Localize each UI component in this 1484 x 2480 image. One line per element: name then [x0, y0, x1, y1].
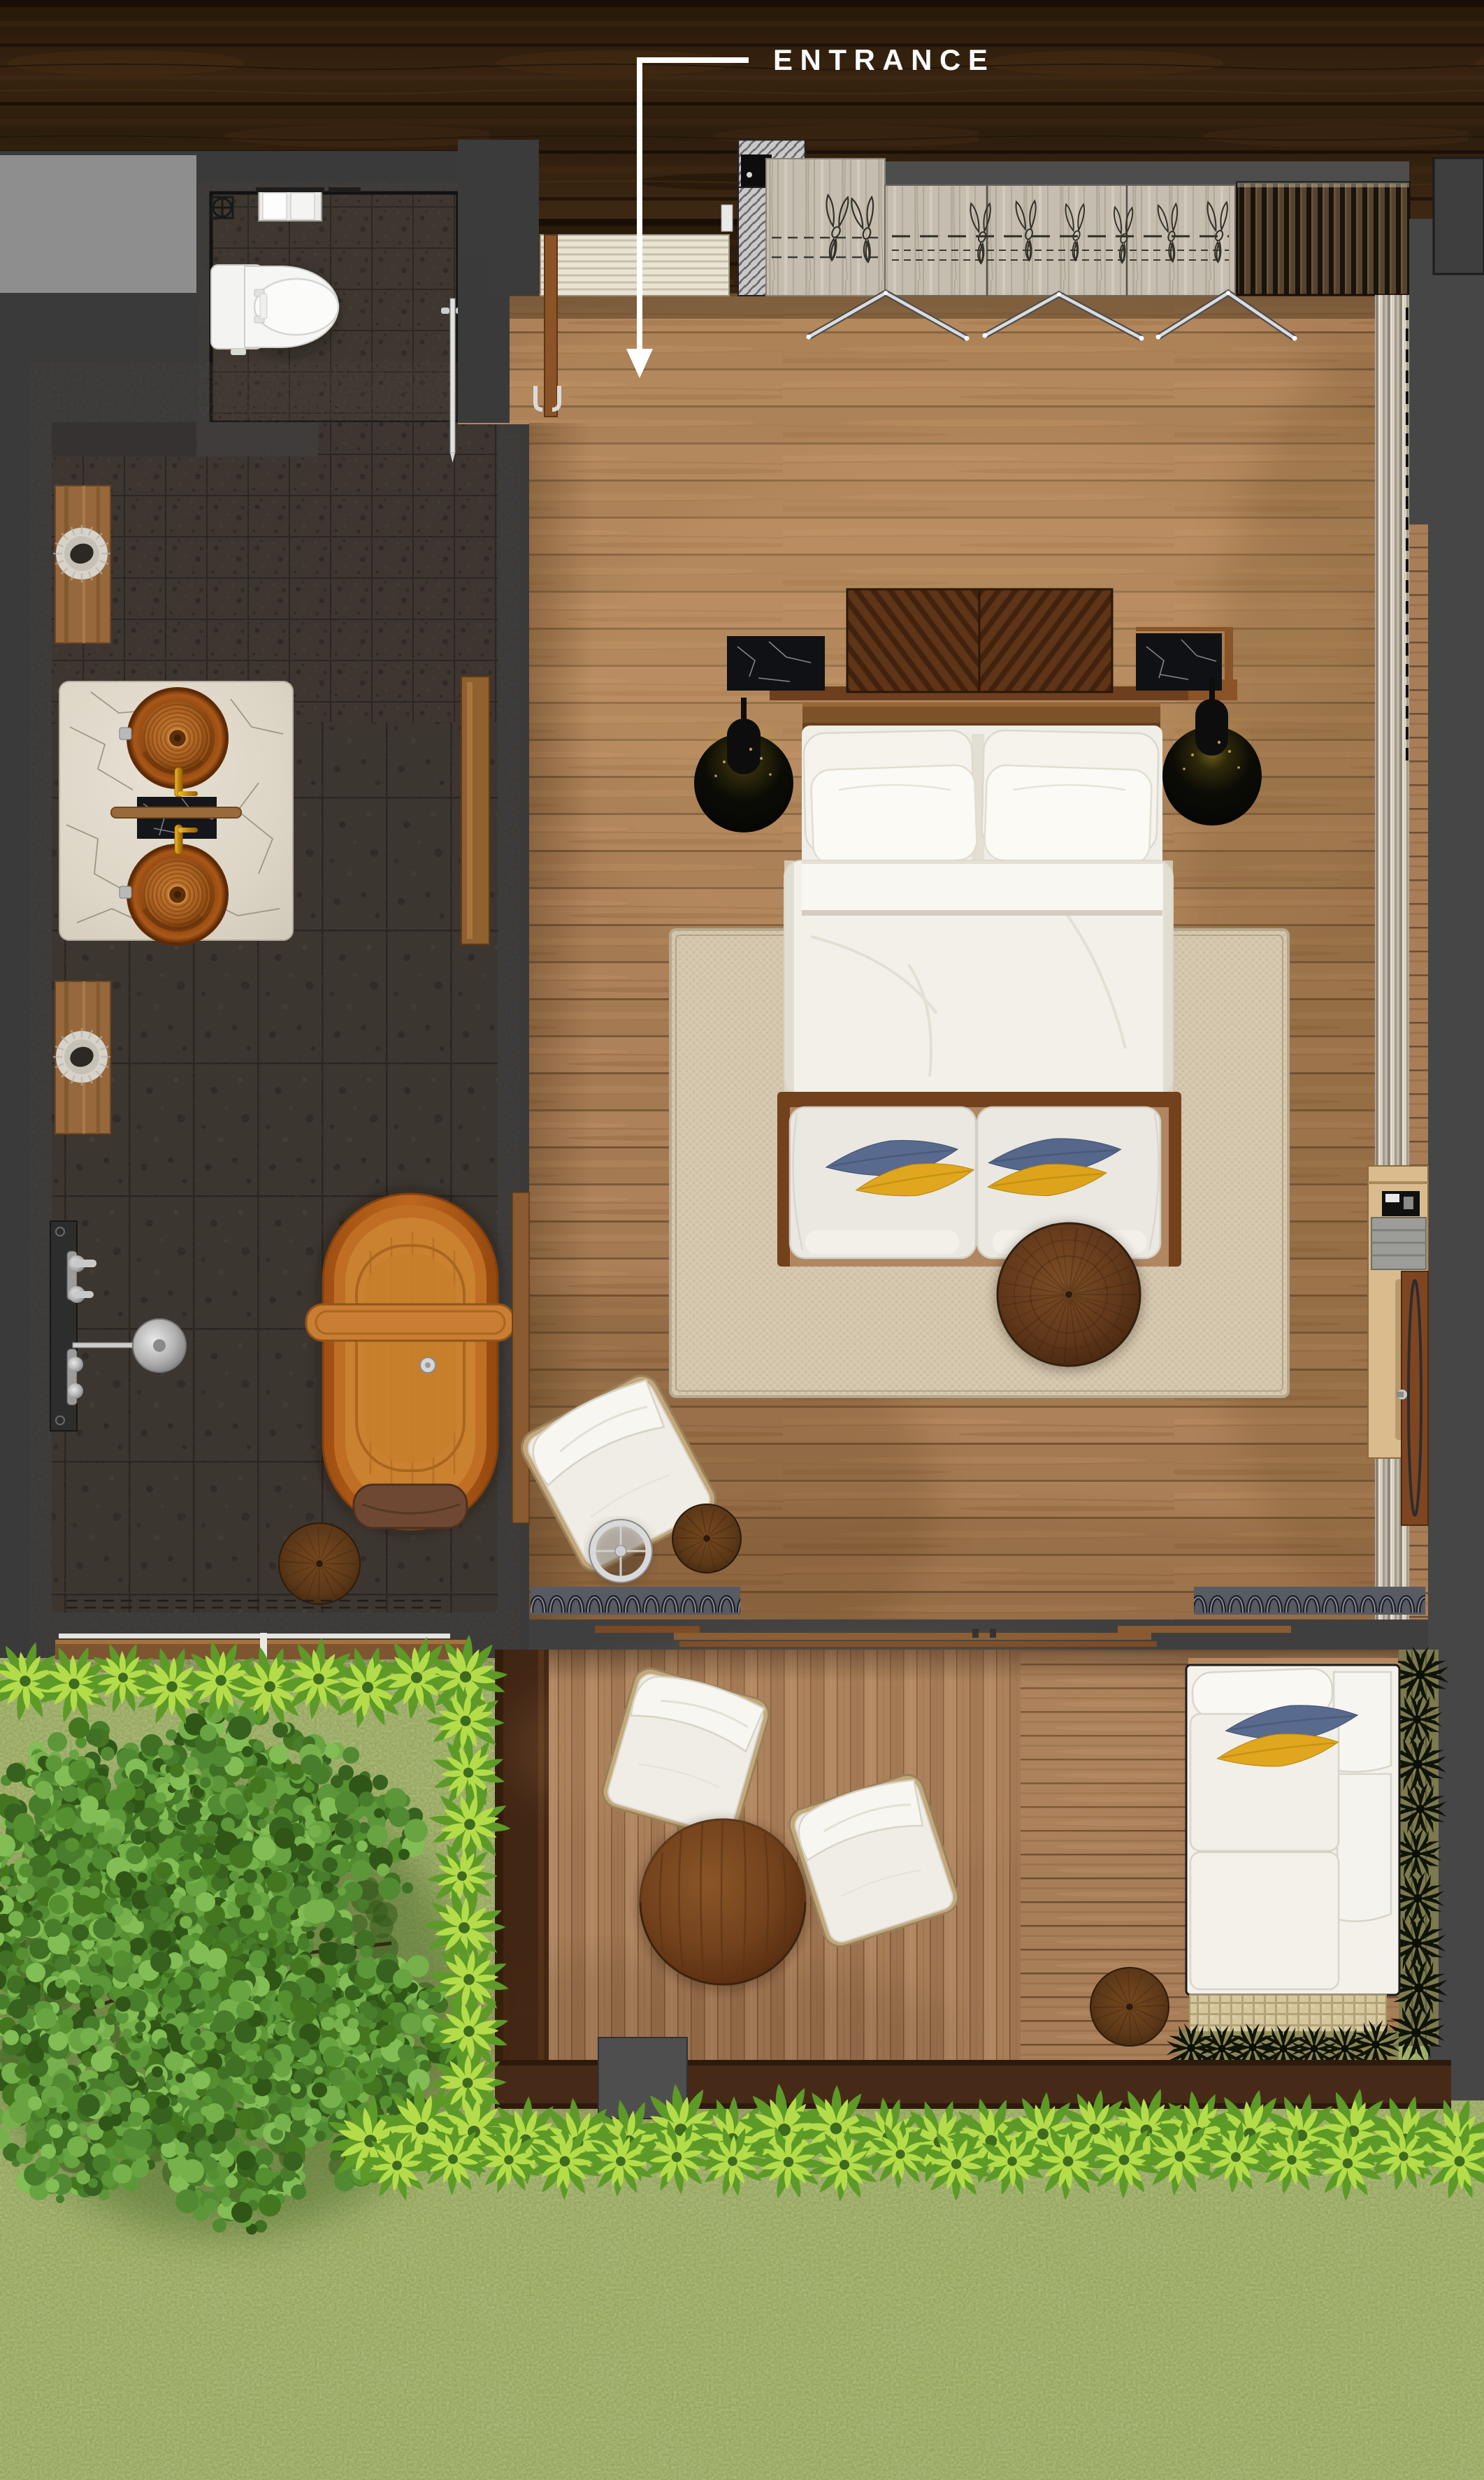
svg-text:ENTRANCE: ENTRANCE	[773, 43, 995, 76]
